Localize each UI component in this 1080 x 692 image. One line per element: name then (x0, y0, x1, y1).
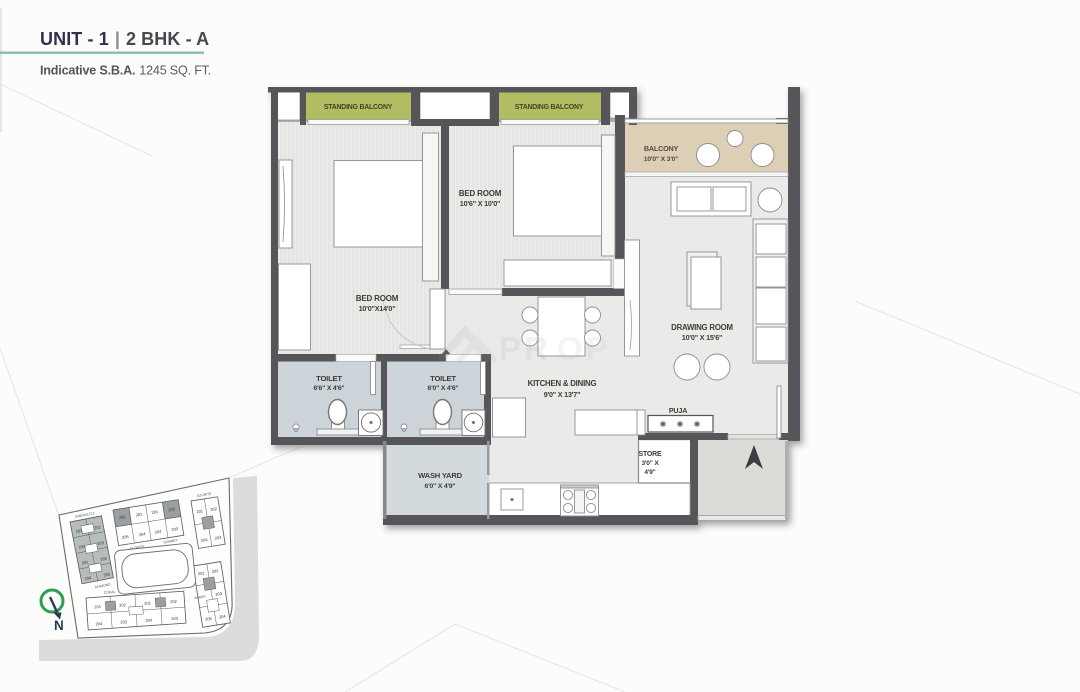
svg-text:STANDING BALCONY: STANDING BALCONY (324, 104, 393, 111)
svg-text:OP: OP (557, 330, 611, 367)
svg-text:10'6" X 10'0": 10'6" X 10'0" (460, 199, 500, 208)
svg-text:6'6" X 4'6": 6'6" X 4'6" (314, 385, 345, 392)
svg-text:10'0"X14'0": 10'0"X14'0" (359, 304, 396, 313)
svg-text:201: 201 (94, 604, 102, 610)
svg-text:202: 202 (170, 599, 178, 605)
svg-text:PUJA: PUJA (669, 406, 687, 415)
svg-text:3'0" X: 3'0" X (641, 460, 659, 467)
svg-text:202: 202 (119, 602, 127, 608)
svg-text:N: N (54, 618, 64, 633)
svg-text:Indicative S.B.A.1245 SQ. FT.: Indicative S.B.A.1245 SQ. FT. (40, 64, 211, 78)
svg-text:6'0" X 4'9": 6'0" X 4'9" (425, 483, 456, 490)
svg-text:DRAWING ROOM: DRAWING ROOM (671, 323, 733, 332)
svg-text:204: 204 (145, 617, 153, 623)
svg-text:PR: PR (499, 330, 551, 367)
svg-text:BED ROOM: BED ROOM (459, 189, 502, 198)
svg-text:KITCHEN & DINING: KITCHEN & DINING (528, 379, 597, 388)
svg-text:STORE: STORE (639, 451, 663, 458)
svg-text:9'0" X 13'7": 9'0" X 13'7" (544, 390, 581, 399)
svg-text:203: 203 (171, 616, 179, 622)
svg-text:BED ROOM: BED ROOM (356, 294, 399, 303)
svg-text:10'0" X 15'6": 10'0" X 15'6" (682, 333, 722, 342)
svg-text:TOILET: TOILET (430, 374, 456, 383)
svg-text:CORAL: CORAL (104, 590, 116, 595)
svg-text:WASH YARD: WASH YARD (418, 471, 462, 480)
svg-text:6'0" X 4'6": 6'0" X 4'6" (428, 385, 459, 392)
svg-text:10'0" X 3'0": 10'0" X 3'0" (644, 156, 679, 163)
svg-text:203: 203 (120, 619, 128, 625)
svg-text:204: 204 (95, 621, 103, 627)
svg-text:201: 201 (144, 600, 152, 606)
svg-text:BALCONY: BALCONY (644, 144, 679, 153)
svg-text:4'9": 4'9" (644, 469, 655, 476)
svg-text:STANDING BALCONY: STANDING BALCONY (515, 104, 584, 111)
svg-text:TOILET: TOILET (316, 374, 342, 383)
